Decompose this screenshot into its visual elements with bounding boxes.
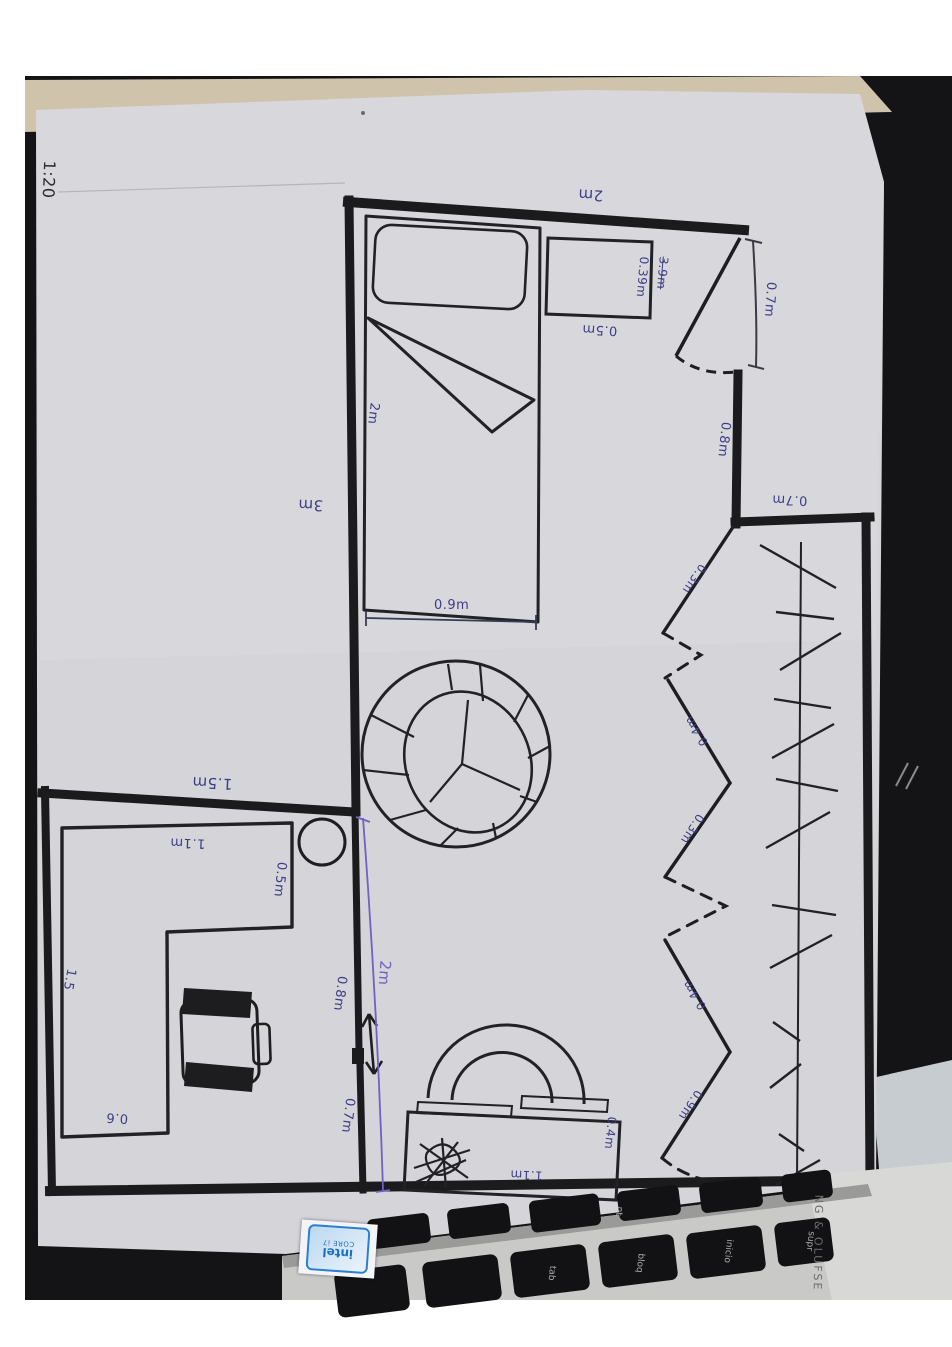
keyboard-key-label-1: nt (613, 1206, 624, 1216)
screen-reflection-marks (896, 763, 918, 789)
intel-sticker: intel CORE i7 (298, 1219, 378, 1278)
label-bed-length: 2m (364, 402, 382, 426)
keyboard-key-label-3: bloq (634, 1253, 646, 1273)
label-desk-room-wall: 1.5m (192, 773, 233, 793)
intel-brand-text: intel (322, 1246, 353, 1260)
scale-label: 1:20 (39, 160, 59, 199)
label-desk-bottom: 0.6 (106, 1109, 129, 1126)
keyboard-key-label-5: supr (804, 1231, 816, 1252)
screenshot: 1:20 2m 3m 1.5m 2m 0.9m 0.39m 3.9m 0.5m … (0, 0, 952, 1347)
label-side-table-crossed: 3.9m (654, 256, 671, 290)
keyboard-key-label-2: tab (546, 1265, 557, 1281)
intel-sticker-inner: intel CORE i7 (305, 1224, 370, 1274)
label-side-table-width: 0.5m (582, 321, 618, 338)
label-bed-width: 0.9m (434, 598, 469, 613)
label-top-wall: 2m (578, 185, 604, 204)
label-console-width: 1.1m (510, 1167, 543, 1182)
label-desk-top: 1.1m (170, 834, 206, 850)
paper-sheet (36, 90, 884, 1254)
label-closet-depth: 0.7m (772, 491, 808, 507)
floorplan-drawing (0, 0, 952, 1347)
label-left-wall: 3m (298, 496, 324, 515)
label-middle-wall-total: 2m (375, 960, 395, 986)
label-door-width: 0.7m (761, 281, 778, 317)
